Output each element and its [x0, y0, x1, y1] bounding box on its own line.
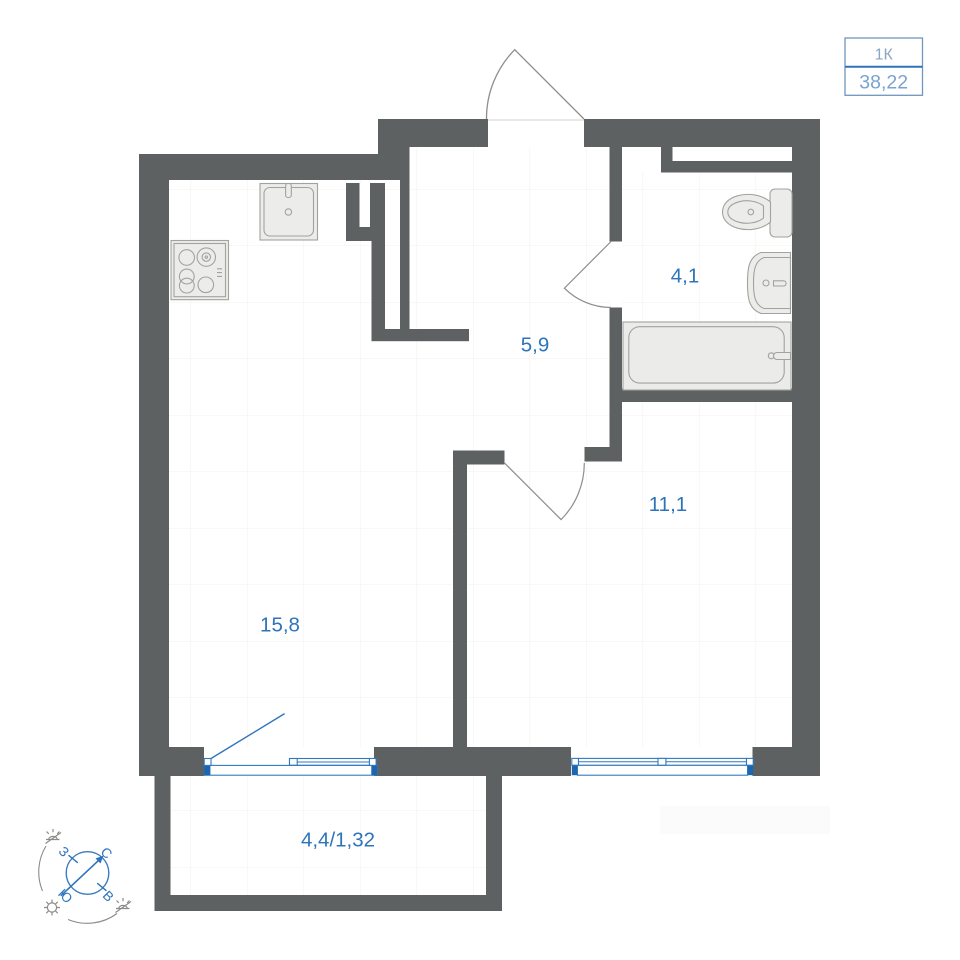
- svg-text:15,8: 15,8: [260, 614, 300, 637]
- svg-text:4,1: 4,1: [671, 265, 700, 288]
- svg-text:11,1: 11,1: [649, 493, 687, 516]
- svg-text:5,9: 5,9: [521, 334, 550, 357]
- svg-text:38,22: 38,22: [859, 72, 908, 94]
- svg-text:1К: 1К: [875, 47, 894, 64]
- svg-text:4,4/1,32: 4,4/1,32: [301, 829, 375, 852]
